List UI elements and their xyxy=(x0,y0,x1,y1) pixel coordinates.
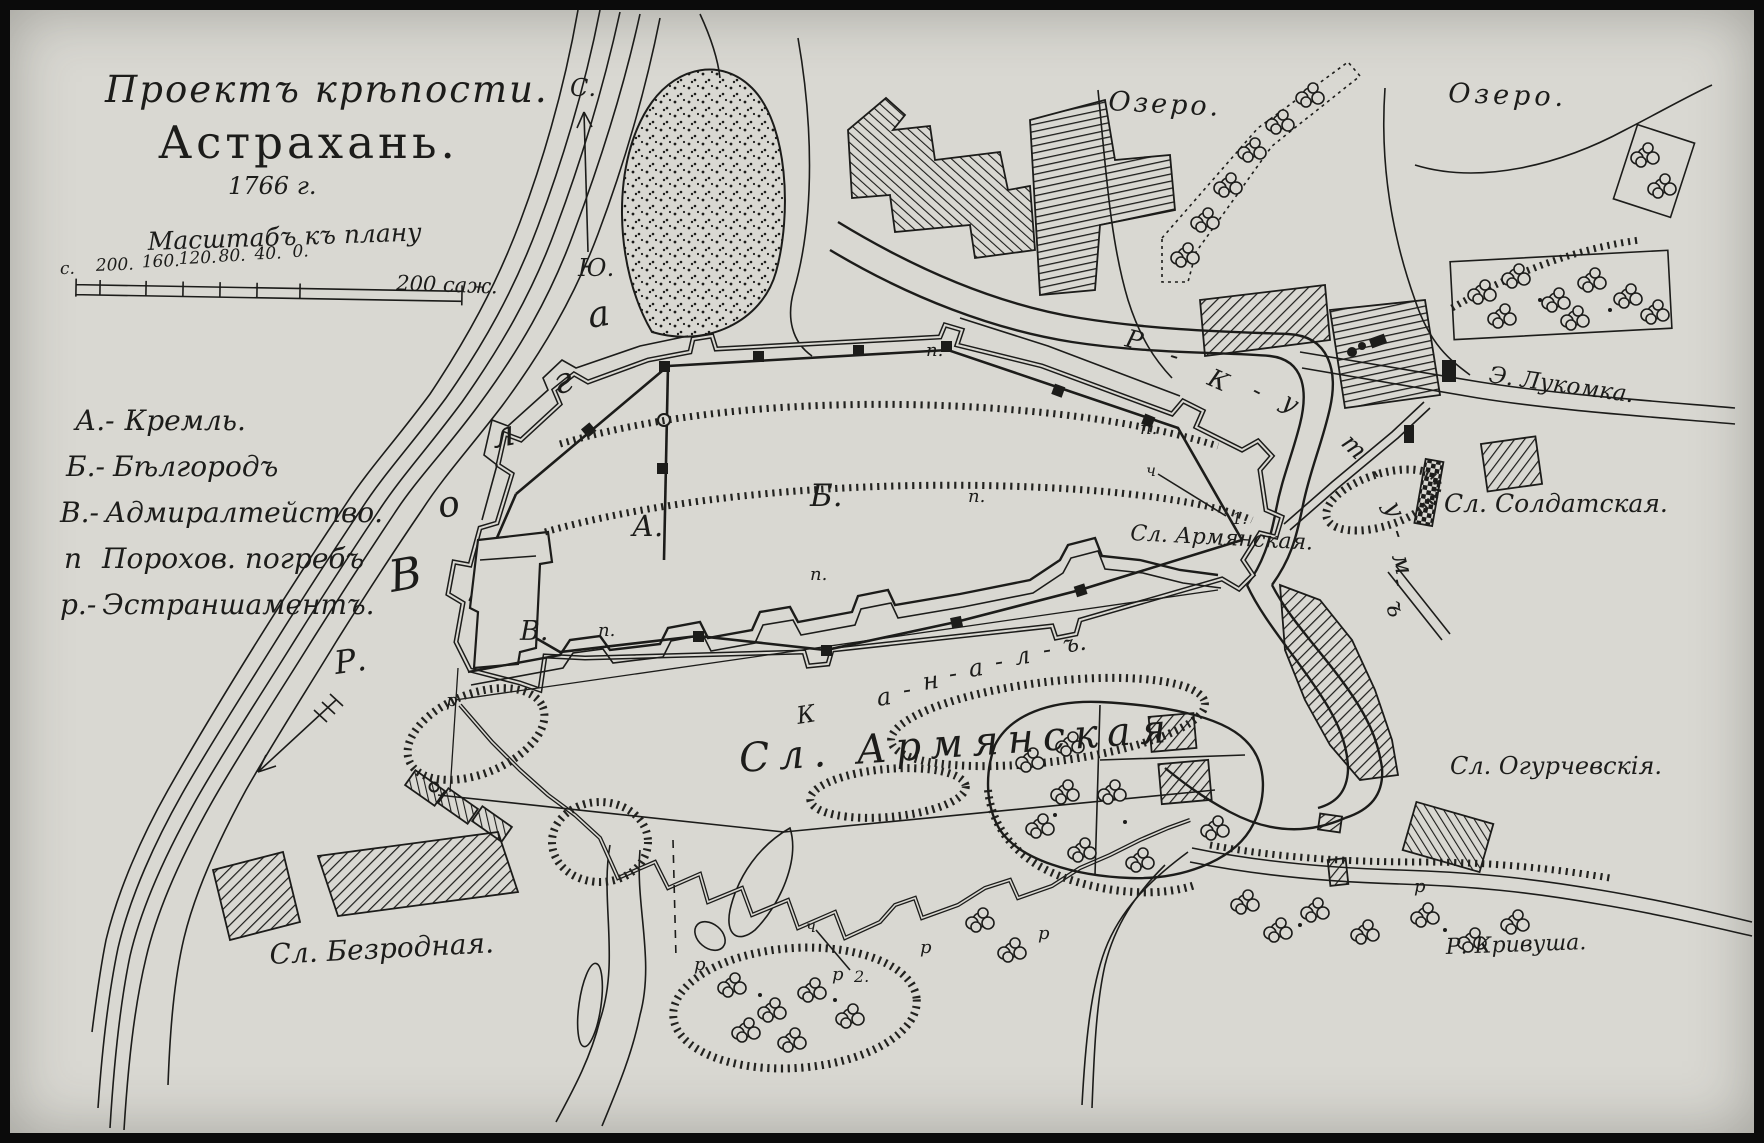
compass-south-label: Ю. xyxy=(577,254,614,282)
svg-text:о: о xyxy=(434,483,462,527)
svg-text:р: р xyxy=(446,690,458,711)
svg-text:1.: 1. xyxy=(1232,509,1247,528)
svg-text:Р.: Р. xyxy=(331,640,369,682)
svg-text:л: л xyxy=(1013,641,1032,671)
svg-text:А.-Кремль.: А.-Кремль. xyxy=(73,404,246,437)
svg-text:р: р xyxy=(694,954,706,975)
svg-text:К: К xyxy=(794,699,819,730)
lukomka-label: Э. Лукомка. xyxy=(1487,362,1635,408)
svg-text:-: - xyxy=(1166,340,1183,370)
svg-text:160.: 160. xyxy=(141,251,180,272)
svg-text:ч: ч xyxy=(806,917,816,936)
scale-extent: 200 саж. xyxy=(395,271,498,299)
svg-text:у: у xyxy=(1276,386,1305,419)
svg-text:р.-Эстраншаментъ.: р.-Эстраншаментъ. xyxy=(60,588,375,621)
svg-text:-: - xyxy=(1041,635,1053,664)
soldatskaya-label: Сл. Солдатская. xyxy=(1444,489,1668,518)
svg-text:л: л xyxy=(488,413,518,457)
svg-text:0.: 0. xyxy=(292,242,309,263)
map-title-line2: Астрахань. xyxy=(158,116,459,169)
sand-island xyxy=(622,14,812,356)
armyanskaya-small-label: Сл. Армянская. xyxy=(1130,521,1314,556)
svg-text:-: - xyxy=(1247,376,1268,406)
map-title-year: 1766 г. xyxy=(228,172,316,200)
astrakhan-fortress-map: Проектъ крѣпости. Астрахань. 1766 г. Мас… xyxy=(0,0,1764,1143)
svg-text:40.: 40. xyxy=(253,243,282,264)
svg-text:-: - xyxy=(901,675,913,704)
svg-text:а: а xyxy=(967,653,986,683)
svg-text:р: р xyxy=(920,937,932,958)
krivusha-label: Р. Кривуша. xyxy=(1444,930,1586,960)
admiralty-letter: В. xyxy=(519,616,548,647)
svg-text:м: м xyxy=(1386,550,1419,577)
northeast-orchards xyxy=(1450,125,1694,340)
map-title-line1: Проектъ крѣпости. xyxy=(104,68,549,111)
compass-north-label: С. xyxy=(570,74,596,102)
svg-text:п.: п. xyxy=(598,620,615,641)
svg-text:-: - xyxy=(947,659,959,688)
svg-text:р: р xyxy=(832,964,844,985)
admiralty-block xyxy=(470,532,552,668)
svg-text:-: - xyxy=(1384,525,1414,542)
belgorod-letter: Б. xyxy=(809,478,843,514)
kremlin-letter: А. xyxy=(630,509,663,543)
svg-text:80.: 80. xyxy=(218,246,246,267)
svg-text:2.: 2. xyxy=(853,967,869,986)
north-arrow xyxy=(577,112,592,252)
lake-left-label: Озеро. xyxy=(1108,86,1222,123)
svg-text:п.: п. xyxy=(968,486,985,507)
svg-text:-: - xyxy=(993,647,1005,676)
svg-text:п.: п. xyxy=(810,564,827,585)
svg-text:п.: п. xyxy=(926,340,943,361)
svg-text:200.: 200. xyxy=(95,255,135,276)
scanned-map-page: Проектъ крѣпости. Астрахань. 1766 г. Мас… xyxy=(0,0,1764,1143)
ogurchevskaya-label: Сл. Огурчевскія. xyxy=(1450,752,1662,780)
svg-text:120.: 120. xyxy=(178,248,217,269)
svg-text:ъ: ъ xyxy=(1380,598,1411,619)
svg-text:т: т xyxy=(1336,428,1373,465)
svg-text:а: а xyxy=(875,682,894,712)
svg-text:В.-Адмиралтейство.: В.-Адмиралтейство. xyxy=(59,496,383,529)
svg-text:р: р xyxy=(1414,876,1426,897)
svg-text:ч: ч xyxy=(1146,461,1156,480)
volga-label: Р. В о л г а xyxy=(331,293,613,682)
legend: А.-Кремль. Б.-Бѣлгородъ В.-Адмиралтейств… xyxy=(59,404,383,621)
svg-text:у: у xyxy=(1378,496,1411,522)
lake-right-label: Озеро. xyxy=(1448,78,1568,113)
svg-text:Б.-Бѣлгородъ: Б.-Бѣлгородъ xyxy=(65,450,278,483)
svg-text:К: К xyxy=(1203,363,1234,398)
svg-text:н: н xyxy=(921,666,941,696)
svg-text:с.: с. xyxy=(60,259,76,280)
svg-text:В: В xyxy=(384,547,426,603)
svg-text:а: а xyxy=(584,293,612,337)
svg-text:р: р xyxy=(1038,923,1050,944)
fortress-rampart xyxy=(448,318,1282,690)
bezrodnaya-label: Сл. Безродная. xyxy=(269,926,495,971)
svg-text:пПорохов. погребъ: пПорохов. погребъ xyxy=(64,542,364,575)
svg-text:п.: п. xyxy=(1140,418,1157,439)
svg-text:Р: Р xyxy=(1122,323,1147,356)
svg-text:ъ.: ъ. xyxy=(1061,628,1089,659)
